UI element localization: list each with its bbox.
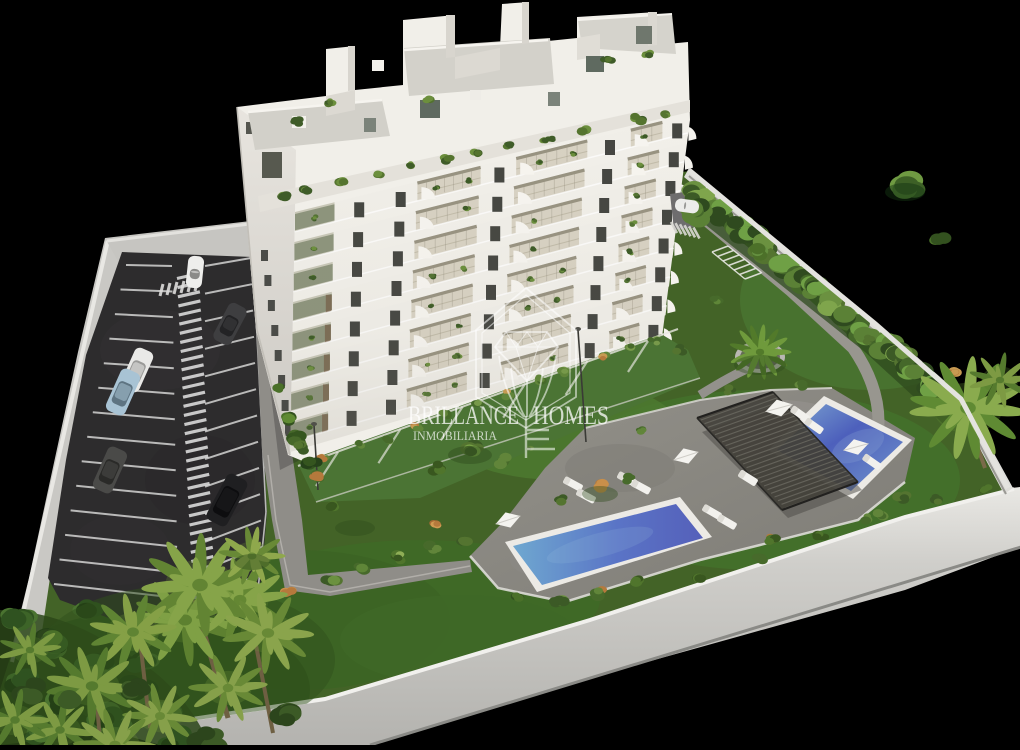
svg-text:HOMES: HOMES <box>533 401 609 430</box>
svg-text:INMOBILIARIA: INMOBILIARIA <box>413 428 498 443</box>
svg-text:BRILLANCE: BRILLANCE <box>408 401 519 430</box>
